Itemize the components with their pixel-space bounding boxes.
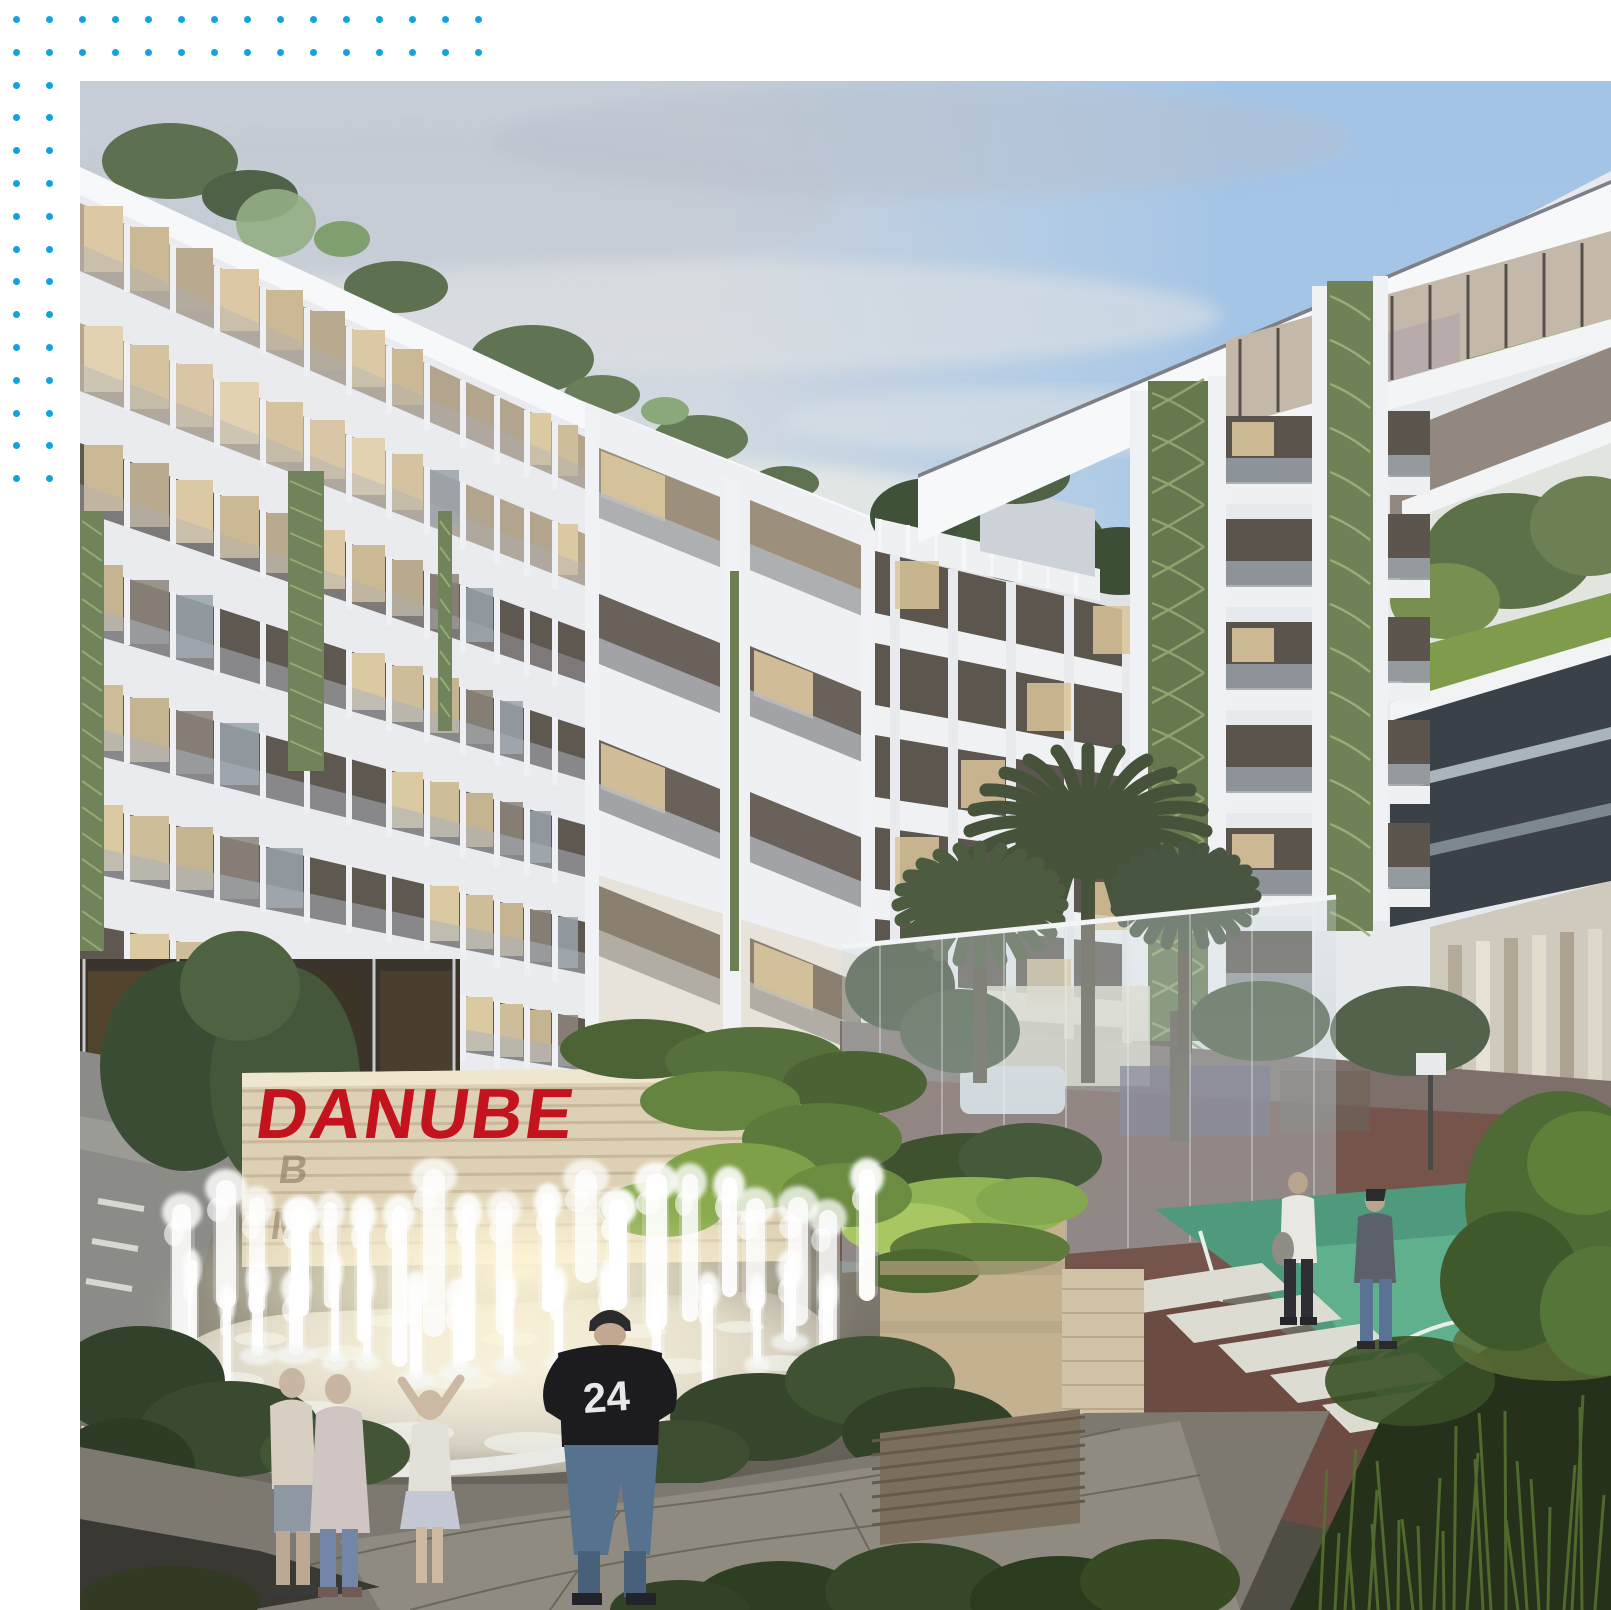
svg-text:24: 24 <box>581 1372 632 1422</box>
svg-text:DANUBE: DANUBE <box>251 1074 581 1154</box>
